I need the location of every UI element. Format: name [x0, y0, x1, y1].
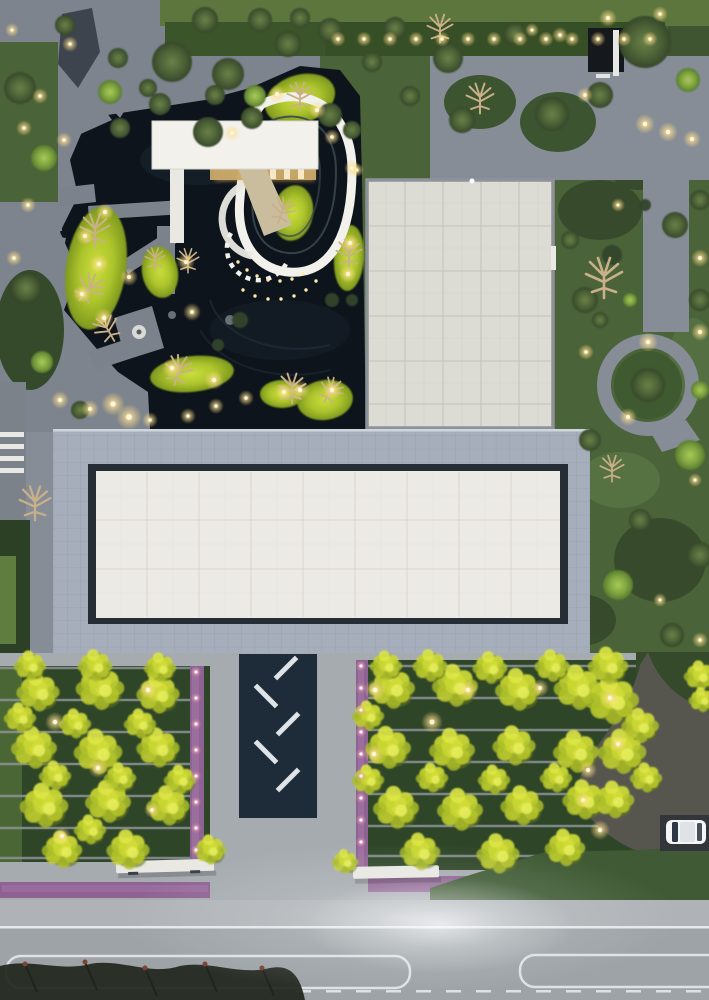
- light-core: [186, 414, 190, 418]
- light-core: [97, 262, 101, 266]
- light-core: [530, 28, 533, 31]
- light-core: [88, 407, 92, 411]
- courtyard-dot: [292, 294, 295, 297]
- light-core: [244, 396, 248, 400]
- pink-light-core: [194, 722, 197, 725]
- olive-tree: [535, 97, 569, 131]
- car-rear-window: [697, 823, 702, 841]
- light-core: [127, 275, 131, 279]
- lane-dash: [656, 990, 671, 993]
- pink-light-core: [359, 664, 362, 667]
- bright-tree: [244, 85, 266, 107]
- light-core: [626, 415, 630, 419]
- light-core: [666, 130, 670, 134]
- light-core: [330, 135, 334, 139]
- light-core: [62, 138, 66, 142]
- olive-tree: [11, 273, 41, 303]
- light-core: [275, 92, 279, 96]
- olive-tree: [139, 79, 157, 97]
- olive-tree: [55, 15, 75, 35]
- light-core: [170, 366, 174, 370]
- courtyard-dot: [290, 277, 293, 280]
- bright-tree: [691, 381, 709, 399]
- light-core: [643, 122, 647, 126]
- roof-edge-unit: [551, 246, 556, 270]
- light-core: [148, 418, 152, 422]
- olive-tree: [400, 86, 420, 106]
- pink-light-core: [194, 848, 197, 851]
- pink-light-core: [194, 748, 197, 751]
- light-core: [190, 310, 194, 314]
- olive-tree: [4, 72, 36, 104]
- light-core: [658, 12, 662, 16]
- olive-tree: [660, 623, 684, 647]
- lane-dash: [566, 990, 581, 993]
- silhouette-red-tip: [143, 966, 148, 971]
- light-core: [608, 696, 612, 700]
- hedge-light-core: [336, 37, 339, 40]
- light-core: [350, 166, 354, 170]
- courtyard-dot: [236, 260, 239, 263]
- olive-tree: [193, 117, 223, 147]
- light-core: [583, 93, 587, 97]
- light-core: [372, 752, 376, 756]
- frame-top-highlight: [53, 429, 590, 432]
- olive-tree: [275, 31, 301, 57]
- hedge-light-core: [596, 37, 599, 40]
- bright-tree: [676, 68, 700, 92]
- pond-rock-1: [168, 311, 176, 319]
- olive-tree: [149, 93, 171, 115]
- courtyard-dot: [314, 279, 317, 282]
- courtyard-dot: [301, 272, 304, 275]
- light-core: [430, 720, 435, 725]
- olive-tree: [241, 107, 263, 129]
- light-core: [658, 598, 661, 601]
- courtyard-dot: [278, 279, 281, 282]
- courtyard-dot: [245, 268, 248, 271]
- hedge-light-core: [544, 37, 547, 40]
- light-core: [598, 828, 602, 832]
- pink-light-core: [194, 670, 197, 673]
- courtyard-dot: [304, 288, 307, 291]
- olive-tree: [592, 312, 608, 328]
- silhouette-red-tip: [83, 960, 88, 965]
- light-core: [581, 798, 585, 802]
- bright-tree: [603, 570, 633, 600]
- pink-light-core: [359, 840, 362, 843]
- hedge-light-core: [466, 37, 469, 40]
- lane-dash: [596, 990, 611, 993]
- courtyard-dot: [253, 294, 256, 297]
- car-roof: [680, 822, 695, 842]
- bush: [639, 199, 651, 211]
- courtyard-dot: [241, 288, 244, 291]
- light-core: [110, 401, 115, 406]
- horizontal-building: [53, 429, 590, 653]
- bush: [346, 294, 358, 306]
- pink-light-core: [359, 730, 362, 733]
- light-core: [616, 742, 620, 746]
- roof-panel-white: [96, 471, 560, 618]
- deck-table-center: [137, 330, 142, 335]
- hedge-light-core: [388, 37, 391, 40]
- pink-light-core: [194, 696, 197, 699]
- olive-tree: [343, 121, 361, 139]
- light-core: [698, 330, 702, 334]
- light-core: [12, 256, 16, 260]
- vertical-building: [367, 179, 556, 429]
- lane-dash: [536, 990, 551, 993]
- hedge-light-core: [362, 37, 365, 40]
- bright-tree: [31, 145, 57, 171]
- light-core: [184, 260, 188, 264]
- lens-flare-haze: [120, 843, 680, 993]
- olive-tree: [433, 43, 463, 73]
- light-core: [698, 256, 702, 260]
- hedge-light-core: [518, 37, 521, 40]
- left-edge-building: [0, 382, 30, 670]
- white-car: [666, 820, 706, 844]
- light-core: [58, 398, 62, 402]
- light-core: [126, 414, 132, 420]
- aerial-photo: [0, 0, 709, 1000]
- car-windshield: [672, 822, 678, 842]
- pink-light-core: [359, 818, 362, 821]
- bright-tree: [675, 440, 705, 470]
- light-core: [606, 16, 610, 20]
- light-core: [150, 808, 154, 812]
- olive-tree: [248, 8, 272, 32]
- left-lawn-sliver: [0, 556, 16, 644]
- olive-tree: [110, 118, 130, 138]
- bush: [212, 339, 224, 351]
- light-core: [693, 478, 696, 481]
- pink-light-core: [359, 708, 362, 711]
- hedge-light-core: [492, 37, 495, 40]
- light-core: [22, 126, 26, 130]
- light-core: [616, 203, 619, 206]
- light-core: [10, 28, 13, 31]
- bush: [602, 245, 622, 265]
- light-core: [96, 766, 100, 770]
- hedge-light-core: [648, 37, 651, 40]
- light-core: [26, 203, 30, 207]
- bush: [232, 312, 248, 328]
- hedge-light-core: [440, 37, 443, 40]
- scene-svg: [0, 0, 709, 1000]
- olive-tree: [561, 231, 579, 249]
- lane-dash: [506, 990, 521, 993]
- light-core: [212, 378, 216, 382]
- bright-tree: [98, 80, 122, 104]
- light-core: [690, 137, 694, 141]
- bush: [325, 293, 339, 307]
- olive-tree: [449, 107, 475, 133]
- silhouette-red-tip: [23, 962, 28, 967]
- olive-tree: [192, 7, 218, 33]
- pavilion-column-walk: [170, 167, 184, 243]
- olive-tree: [290, 8, 310, 28]
- pink-light-core: [194, 826, 197, 829]
- light-core: [346, 272, 350, 276]
- small-bench: [596, 74, 610, 78]
- lane-dash: [686, 990, 701, 993]
- courtyard-dot: [266, 278, 269, 281]
- light-core: [83, 234, 87, 238]
- hedge-light-core: [622, 37, 625, 40]
- olive-tree: [662, 212, 688, 238]
- courtyard-dot: [279, 297, 282, 300]
- hedge-light-core: [414, 37, 417, 40]
- olive-tree: [205, 85, 225, 105]
- light-core: [586, 768, 590, 772]
- light-core: [230, 131, 234, 135]
- light-core: [53, 720, 57, 724]
- pink-light-core: [194, 800, 197, 803]
- lane-dash: [476, 990, 491, 993]
- pink-light-core: [194, 774, 197, 777]
- courtyard-dot: [255, 274, 258, 277]
- courtyard-dot: [266, 297, 269, 300]
- light-core: [348, 241, 352, 245]
- light-core: [698, 638, 702, 642]
- olive-tree: [108, 48, 128, 68]
- lane-dash: [626, 990, 641, 993]
- light-core: [103, 210, 107, 214]
- roof-vent: [470, 179, 475, 184]
- olive-tree: [631, 368, 665, 402]
- light-core: [558, 33, 562, 37]
- pink-light-core: [359, 774, 362, 777]
- light-core: [38, 94, 42, 98]
- bright-tree: [623, 293, 637, 307]
- hedge-light-core: [570, 37, 573, 40]
- light-core: [80, 292, 84, 296]
- light-core: [584, 350, 588, 354]
- light-core: [538, 686, 542, 690]
- light-core: [330, 388, 334, 392]
- light-core: [298, 388, 302, 392]
- olive-tree: [579, 429, 601, 451]
- olive-tree: [152, 42, 192, 82]
- light-core: [102, 316, 106, 320]
- light-core: [146, 688, 150, 692]
- light-core: [466, 688, 470, 692]
- pink-light-core: [359, 752, 362, 755]
- light-core: [60, 834, 64, 838]
- olive-tree: [362, 52, 382, 72]
- light-core: [282, 390, 286, 394]
- pink-light-core: [359, 796, 362, 799]
- light-core: [646, 340, 650, 344]
- bright-tree: [31, 351, 53, 373]
- olive-tree: [629, 509, 651, 531]
- light-core: [68, 42, 72, 46]
- light-core: [373, 688, 378, 693]
- light-core: [214, 404, 218, 408]
- light-core: [315, 108, 319, 112]
- pink-light-core: [359, 686, 362, 689]
